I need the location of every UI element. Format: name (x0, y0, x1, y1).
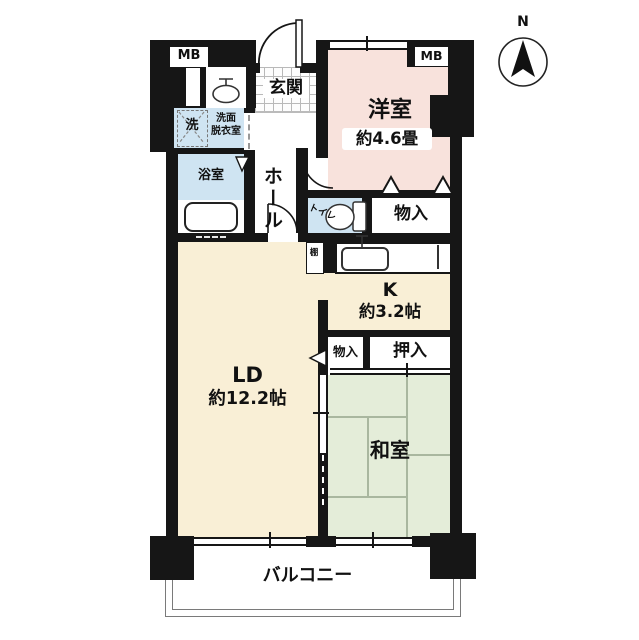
hall-label: ホール (261, 146, 282, 251)
window-tick (269, 532, 271, 548)
washbasin-box (206, 67, 246, 108)
washroom-label-line1: 洗面 (216, 113, 236, 124)
wall (166, 150, 178, 540)
wall (412, 536, 430, 547)
meter-box-right-label: MB (413, 49, 450, 63)
living-dining-label: LD (200, 364, 295, 387)
pillar-bottom-right (430, 533, 476, 579)
closet-label: 押入 (370, 342, 450, 361)
window-tick (406, 363, 408, 377)
compass-icon (499, 38, 547, 86)
meter-box-left-label: MB (168, 49, 210, 63)
washer-label: 洗 (179, 119, 205, 133)
living-dining-size: 約12.2帖 (185, 390, 310, 409)
washroom-label-line2: 脱衣室 (211, 126, 241, 137)
storage-mid-label: 物入 (328, 345, 363, 359)
wall (318, 330, 452, 337)
opening-dashes (196, 236, 226, 238)
wall (296, 190, 462, 198)
western-room-size: 約4.6畳 (342, 128, 432, 150)
entrance-step-line (255, 111, 316, 113)
pipe-space (186, 68, 200, 106)
kitchen-label: K (355, 280, 425, 301)
shelf-label: 棚 (306, 249, 322, 258)
window-tick (372, 532, 374, 548)
window-tick (313, 412, 329, 414)
wall (168, 148, 250, 154)
wall (363, 337, 370, 368)
kitchen-counter (335, 242, 452, 274)
bathroom-label: 浴室 (178, 169, 244, 183)
entrance-label: 玄関 (263, 79, 309, 98)
wall (318, 300, 328, 375)
window-western-top (330, 40, 407, 50)
western-room-label: 洋室 (328, 99, 452, 123)
kitchen-size: 約3.2帖 (340, 303, 440, 321)
balcony-label: バルコニー (230, 566, 385, 586)
counter-divider (437, 245, 439, 269)
wall-dotted (318, 453, 328, 507)
wall (362, 190, 372, 233)
pillar-bottom-left (150, 536, 194, 580)
compass-label: N (514, 15, 532, 30)
accordion-door-dashes (248, 115, 250, 149)
kitchen-sink (341, 247, 389, 271)
sliding-door-closet (330, 368, 450, 375)
window-tick (366, 36, 368, 51)
wall (316, 42, 328, 158)
floor-plan: MB MB 玄関 洋室 約4.6畳 洗 洗面 脱衣室 浴室 ホール トイレ 物入… (0, 0, 639, 640)
bathtub (184, 202, 238, 232)
wall (150, 108, 174, 152)
entrance-door-swing (259, 20, 302, 67)
wall (316, 40, 330, 50)
window-living-bottom (194, 537, 306, 546)
wall (450, 67, 462, 537)
tatami-line (328, 496, 407, 498)
wall (306, 536, 336, 547)
storage-top-label: 物入 (372, 205, 450, 224)
window-japanese-bottom (336, 537, 412, 546)
japanese-room-label: 和室 (355, 439, 425, 461)
washroom-label: 洗面 脱衣室 (206, 112, 246, 138)
sliding-door-living-japanese (318, 375, 328, 453)
